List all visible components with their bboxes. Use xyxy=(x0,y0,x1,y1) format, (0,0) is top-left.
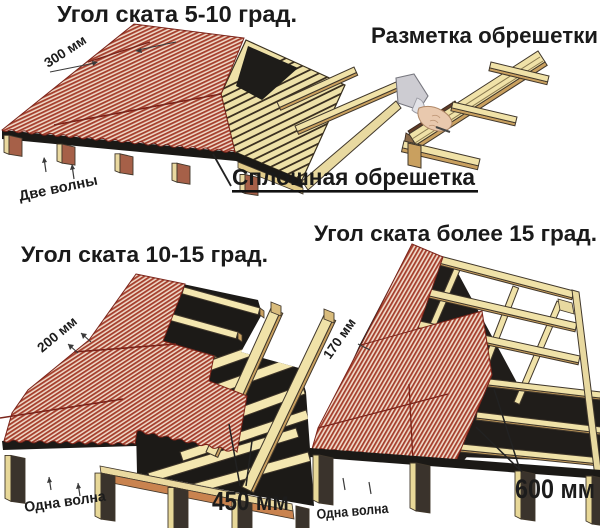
svg-text:600 мм: 600 мм xyxy=(515,474,595,504)
svg-text:Сплошная обрешетка: Сплошная обрешетка xyxy=(232,164,475,190)
svg-text:Угол ската 10-15 град.: Угол ската 10-15 град. xyxy=(21,242,268,267)
svg-text:Разметка обрешетки: Разметка обрешетки xyxy=(371,23,598,48)
svg-text:Угол ската более 15 град.: Угол ската более 15 град. xyxy=(314,221,597,246)
svg-text:Угол ската 5-10 град.: Угол ската 5-10 град. xyxy=(57,1,297,27)
svg-text:450 мм: 450 мм xyxy=(212,486,289,516)
